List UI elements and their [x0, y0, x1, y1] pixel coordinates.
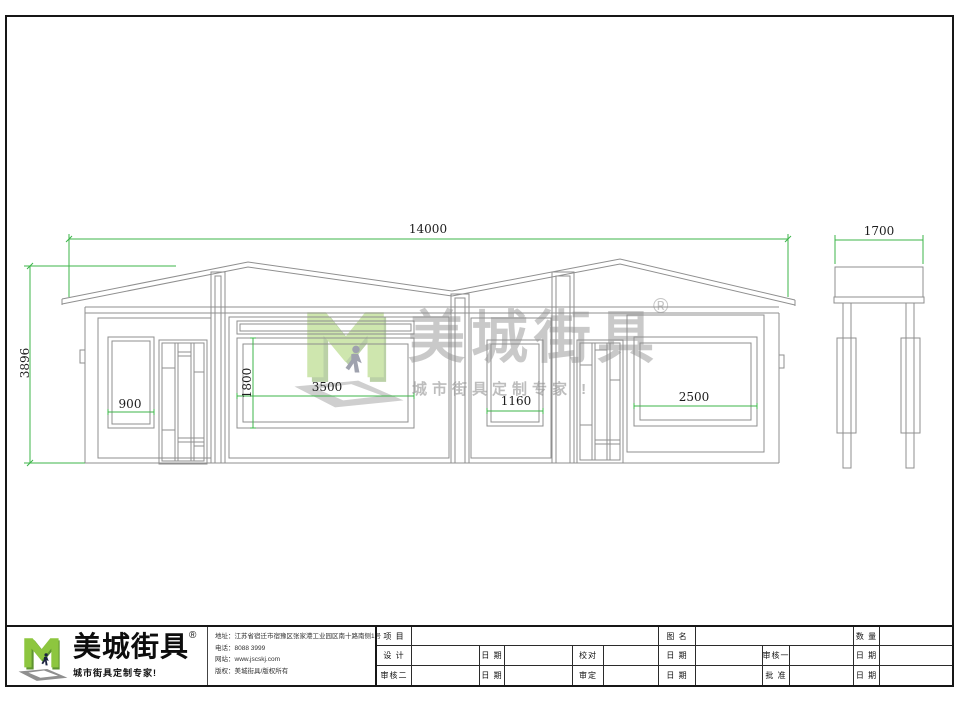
field-approval [790, 666, 854, 685]
dimension-main-window-height: 1800 [240, 368, 254, 399]
label-reviewer2: 审核二 [377, 666, 412, 685]
field-final-approval [604, 666, 659, 685]
label-design: 设 计 [377, 646, 412, 665]
company-copyright: 版权：美城街具/版权所有 [215, 666, 375, 678]
dimension-overall-width: 14000 [409, 222, 447, 236]
label-project: 项 目 [377, 627, 412, 646]
label-date: 日 期 [480, 646, 505, 665]
field-proofread [604, 646, 659, 665]
page: 美城街具 ® 城市街具定制专家 ! [0, 0, 960, 704]
title-block: 美城街具® 城市街具定制专家! 地址：江苏省宿迁市宿豫区张家港工业园区南十路南侧… [5, 625, 954, 687]
dimension-side-width: 1700 [864, 224, 895, 238]
dimension-overall-height: 3896 [18, 348, 32, 379]
company-website: 网站：www.jscskj.com [215, 654, 375, 666]
field-project [412, 627, 659, 646]
title-block-table: 项 目 图 名 数 量 设 计 日 期 校对 日 期 审核一 日 期 审核二 日… [375, 627, 952, 685]
dimension-center-window: 1160 [501, 394, 532, 408]
registered-mark: ® [189, 630, 196, 641]
label-drawing-name: 图 名 [659, 627, 696, 646]
field-design [412, 646, 480, 665]
field-reviewer2 [412, 666, 480, 685]
company-info: 地址：江苏省宿迁市宿豫区张家港工业园区南十路南侧1号 电话：8088 3999 … [207, 627, 375, 685]
label-date: 日 期 [480, 666, 505, 685]
label-date: 日 期 [659, 666, 696, 685]
field-reviewer1-date [880, 646, 952, 665]
label-quantity: 数 量 [854, 627, 880, 646]
field-quantity [880, 627, 952, 646]
company-slogan: 城市街具定制专家! [73, 666, 196, 679]
label-date: 日 期 [854, 666, 880, 685]
label-approval: 批 准 [763, 666, 790, 685]
label-proofread: 校对 [573, 646, 604, 665]
dimension-main-window-width: 3500 [312, 380, 343, 394]
label-date: 日 期 [854, 646, 880, 665]
company-logo-area: 美城街具® 城市街具定制专家! [7, 627, 207, 685]
label-date: 日 期 [659, 646, 696, 665]
field-final-approval-date [696, 666, 763, 685]
company-brand-name: 美城街具 [73, 632, 189, 662]
field-proofread-date [696, 646, 763, 665]
dimension-left-window: 900 [119, 397, 142, 411]
company-phone: 电话：8088 3999 [215, 643, 375, 655]
company-logo-icon [15, 631, 71, 683]
field-reviewer1 [790, 646, 854, 665]
elevation-drawing [0, 0, 960, 704]
dimension-right-window: 2500 [679, 390, 710, 404]
field-drawing-name [696, 627, 854, 646]
field-approval-date [880, 666, 952, 685]
label-reviewer1: 审核一 [763, 646, 790, 665]
field-reviewer2-date [505, 666, 573, 685]
label-final-approval: 审定 [573, 666, 604, 685]
company-address: 地址：江苏省宿迁市宿豫区张家港工业园区南十路南侧1号 [215, 631, 375, 643]
field-design-date [505, 646, 573, 665]
